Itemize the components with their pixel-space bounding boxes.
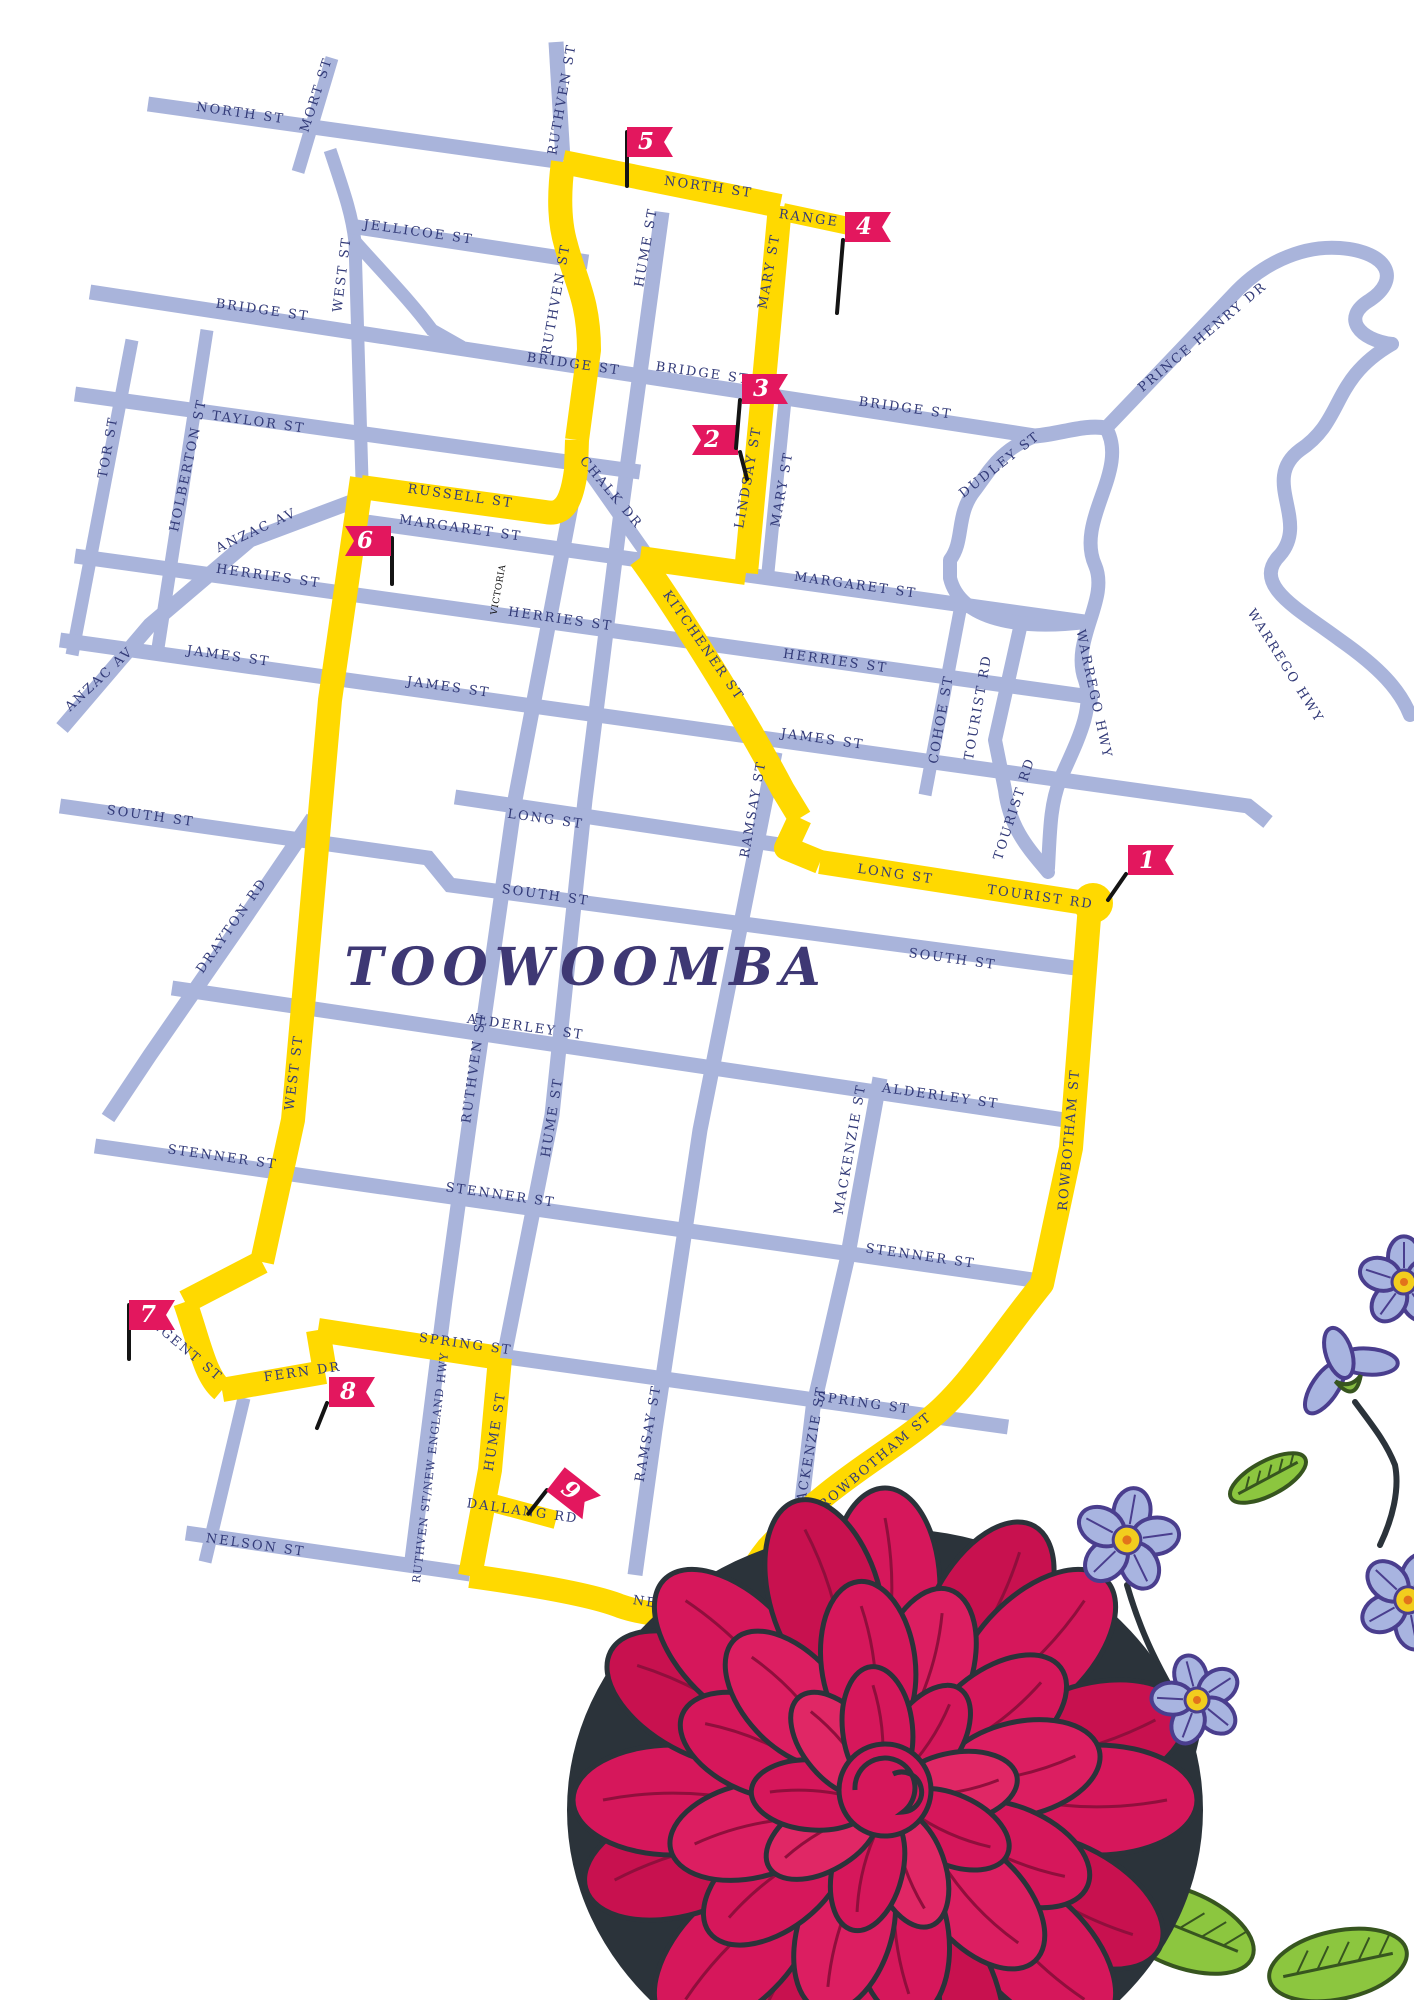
- flag-7-number: 7: [140, 1301, 156, 1328]
- flag-4-number: 4: [856, 213, 872, 240]
- flag-6-number: 6: [357, 527, 373, 554]
- forget-me-not: [1356, 1236, 1414, 1328]
- flag-4-pole: [837, 240, 843, 313]
- flag-1-pole: [1108, 874, 1126, 900]
- road-prince-henry-dr: [1106, 248, 1392, 428]
- toowoomba-route-map: NORTH ST MORT ST RUTHVEN ST JELLICOE ST …: [0, 0, 1414, 2000]
- road-ramsay-st: [635, 752, 775, 1575]
- forget-me-not-center-dot: [1400, 1278, 1408, 1286]
- road-dudley-st: [950, 436, 1085, 625]
- flag-1: 1: [1108, 845, 1174, 900]
- flag-8: 8: [317, 1377, 375, 1428]
- flag-9: 9: [528, 1467, 601, 1542]
- flower-stem-3: [1355, 1402, 1397, 1545]
- flag-4: 4: [837, 212, 891, 313]
- forget-me-not: [1338, 1532, 1414, 1669]
- flag-3-pole: [736, 400, 740, 448]
- page-title: TOOWOOMBA: [344, 937, 827, 998]
- crocus-flower: [1278, 1310, 1411, 1424]
- label-cohoe-st: COHOE ST: [926, 674, 956, 765]
- label-prince-henry-dr: PRINCE HENRY DR: [1135, 279, 1270, 395]
- label-herries-st-3: HERRIES ST: [782, 647, 889, 677]
- flag-7: 7: [129, 1300, 175, 1359]
- label-bridge-st-2: BRIDGE ST: [526, 351, 622, 379]
- road-anzac-av: [62, 498, 362, 728]
- road-tor-st: [72, 340, 132, 655]
- flag-2-number: 2: [703, 426, 720, 453]
- blue-roads: [60, 42, 1410, 1575]
- leaf: [1223, 1443, 1313, 1512]
- route-ruthven-st: [560, 162, 589, 440]
- label-drayton-rd: DRAYTON RD: [194, 876, 271, 977]
- road-warrego-loop: [1271, 344, 1410, 715]
- flag-1-number: 1: [1139, 847, 1155, 874]
- label-hume-st-lower: HUME ST: [539, 1076, 566, 1158]
- flag-5-number: 5: [638, 128, 654, 155]
- route-james-jog: [786, 818, 820, 862]
- route-stenner-jog: [185, 1262, 262, 1302]
- flag-8-pole: [317, 1403, 327, 1428]
- flag-8-number: 8: [339, 1378, 356, 1405]
- flag-3-number: 3: [753, 375, 769, 402]
- label-dudley-st: DUDLEY ST: [957, 429, 1044, 501]
- leaf: [1262, 1917, 1413, 2000]
